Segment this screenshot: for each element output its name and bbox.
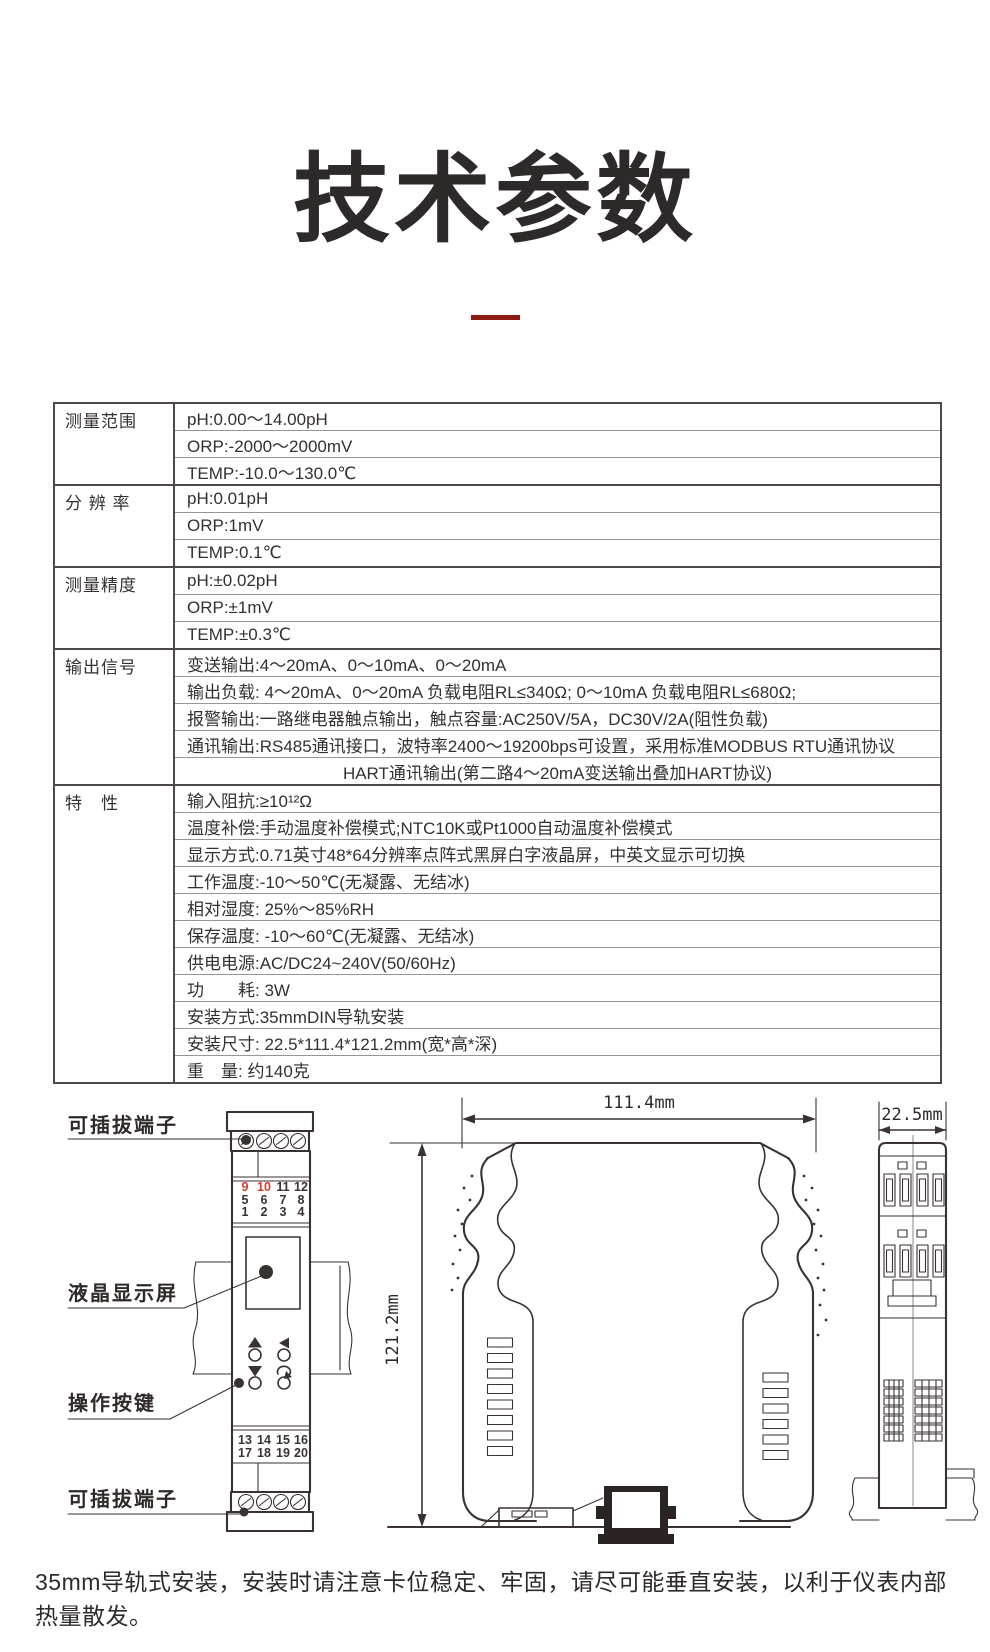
spec-row: 测量精度 pH:±0.02pH [54, 567, 941, 595]
spec-value: 报警输出:一路继电器触点输出，触点容量:AC250V/5A，DC30V/2A(阻… [174, 704, 941, 731]
spec-row: 供电电源:AC/DC24~240V(50/60Hz) [54, 948, 941, 975]
spec-row: 功 耗: 3W [54, 975, 941, 1002]
spec-value: TEMP:0.1℃ [174, 540, 941, 568]
spec-value: pH:±0.02pH [174, 567, 941, 595]
up-arrow-icon [248, 1337, 262, 1348]
spec-value: 安装方式:35mmDIN导轨安装 [174, 1002, 941, 1029]
spec-row: ORP:-2000～2000mV [54, 431, 941, 458]
svg-text:4: 4 [298, 1205, 305, 1219]
spec-group-label: 测量精度 [54, 567, 174, 649]
spec-group-label: 测量范围 [54, 403, 174, 485]
spec-value: 保存温度: -10～60℃(无凝露、无结冰) [174, 921, 941, 948]
spec-row: 特 性 输入阻抗:≥10¹²Ω [54, 785, 941, 813]
spec-group-label: 分 辨 率 [54, 485, 174, 567]
dim-width-label: 111.4mm [603, 1093, 675, 1113]
spec-row: 测量范围 pH:0.00～14.00pH [54, 403, 941, 431]
spec-row: 相对湿度: 25%～85%RH [54, 894, 941, 921]
svg-text:19: 19 [276, 1446, 290, 1460]
dim-depth-label: 22.5mm [881, 1105, 942, 1125]
button-left [278, 1349, 290, 1361]
spec-value: TEMP:±0.3℃ [174, 622, 941, 650]
svg-text:3: 3 [280, 1205, 287, 1219]
rear-view: 22.5mm [849, 1102, 977, 1520]
spec-group-label: 特 性 [54, 785, 174, 1083]
title-divider [471, 315, 520, 320]
callouts: 可插拔端子 液晶显示屏 操作按键 可插拔端子 [68, 1113, 264, 1517]
spec-row: 通讯输出:RS485通讯接口，波特率2400～19200bps可设置，采用标准M… [54, 731, 941, 758]
svg-text:10: 10 [257, 1180, 271, 1194]
svg-text:16: 16 [294, 1433, 308, 1447]
lcd-leader-dot [259, 1265, 273, 1279]
spec-value: 工作温度:-10～50℃(无凝露、无结冰) [174, 867, 941, 894]
button-up [249, 1349, 261, 1361]
spec-value: HART通讯输出(第二路4～20mA变送输出叠加HART协议) [174, 758, 941, 786]
button-down [249, 1377, 261, 1389]
spec-row: TEMP:-10.0～130.0℃ [54, 458, 941, 486]
spec-row: 温度补偿:手动温度补偿模式;NTC10K或Pt1000自动温度补偿模式 [54, 813, 941, 840]
vent-slots-right [763, 1373, 788, 1460]
spec-row: 输出信号 变送输出:4～20mA、0～10mA、0～20mA [54, 649, 941, 677]
bottom-terminal-screws [239, 1495, 306, 1510]
left-arrow-icon [279, 1338, 289, 1349]
mounting-note: 35mm导轨式安装，安装时请注意卡位稳定、牢固，请尽可能垂直安装，以利于仪表内部… [35, 1563, 965, 1631]
page: 技术参数 测量范围 pH:0.00～14.00pH ORP:-2000～2000… [0, 0, 990, 1652]
spec-group-label: 输出信号 [54, 649, 174, 785]
terminal-numbers-bottom: 13 14 15 16 17 18 19 20 [238, 1433, 308, 1460]
spec-row: ORP:1mV [54, 513, 941, 540]
spec-row: 分 辨 率 pH:0.01pH [54, 485, 941, 513]
spec-value: 功 耗: 3W [174, 975, 941, 1002]
din-clip [481, 1486, 676, 1544]
operation-buttons [248, 1337, 292, 1389]
rear-terminal-second [884, 1230, 944, 1277]
spec-value: ORP:1mV [174, 513, 941, 540]
spec-value: ORP:-2000～2000mV [174, 431, 941, 458]
spec-value: 变送输出:4～20mA、0～10mA、0～20mA [174, 649, 941, 677]
svg-text:18: 18 [257, 1446, 271, 1460]
dim-depth: 22.5mm [879, 1102, 946, 1140]
side-profile-right [740, 1143, 813, 1521]
page-title: 技术参数 [0, 142, 990, 258]
texture-dots [451, 1175, 828, 1337]
spec-value: 通讯输出:RS485通讯接口，波特率2400～19200bps可设置，采用标准M… [174, 731, 941, 758]
spec-row: 输出负载: 4～20mA、0～20mA 负载电阻RL≤340Ω; 0～10mA … [54, 677, 941, 704]
top-terminal-block [227, 1112, 313, 1131]
spec-value: 输入阻抗:≥10¹²Ω [174, 785, 941, 813]
spec-value: 输出负载: 4～20mA、0～20mA 负载电阻RL≤340Ω; 0～10mA … [174, 677, 941, 704]
rail-latch [888, 1280, 936, 1306]
spec-row: TEMP:±0.3℃ [54, 622, 941, 650]
svg-text:14: 14 [257, 1433, 271, 1447]
spec-row: TEMP:0.1℃ [54, 540, 941, 568]
label-buttons: 操作按键 [68, 1391, 156, 1415]
svg-text:1: 1 [242, 1205, 249, 1219]
terminal-numbers-top: 9 10 11 12 5 6 7 8 1 2 3 4 [242, 1180, 308, 1219]
spec-table: 测量范围 pH:0.00～14.00pH ORP:-2000～2000mV TE… [53, 402, 942, 1084]
spec-row: 工作温度:-10～50℃(无凝露、无结冰) [54, 867, 941, 894]
spec-value: 供电电源:AC/DC24~240V(50/60Hz) [174, 948, 941, 975]
side-view: 111.4mm 121.2mm [383, 1093, 827, 1544]
svg-text:12: 12 [294, 1180, 308, 1194]
down-arrow-icon [248, 1366, 262, 1377]
spec-value: 相对湿度: 25%～85%RH [174, 894, 941, 921]
spec-value: pH:0.01pH [174, 485, 941, 513]
spec-row: HART通讯输出(第二路4～20mA变送输出叠加HART协议) [54, 758, 941, 786]
installation-diagram: 9 10 11 12 5 6 7 8 1 2 3 4 [0, 1040, 990, 1552]
dim-height-label: 121.2mm [383, 1294, 403, 1366]
spec-row: ORP:±1mV [54, 595, 941, 622]
spec-value: ORP:±1mV [174, 595, 941, 622]
svg-text:15: 15 [276, 1433, 290, 1447]
svg-text:17: 17 [238, 1446, 252, 1460]
svg-text:13: 13 [238, 1433, 252, 1447]
svg-text:9: 9 [242, 1180, 249, 1194]
front-view: 9 10 11 12 5 6 7 8 1 2 3 4 [68, 1112, 352, 1531]
spec-value: 显示方式:0.71英寸48*64分辨率点阵式黑屏白字液晶屏，中英文显示可切换 [174, 840, 941, 867]
spec-row: 报警输出:一路继电器触点输出，触点容量:AC250V/5A，DC30V/2A(阻… [54, 704, 941, 731]
spec-value: TEMP:-10.0～130.0℃ [174, 458, 941, 486]
vent-slots-left [488, 1338, 513, 1456]
spec-row: 安装方式:35mmDIN导轨安装 [54, 1002, 941, 1029]
spec-row: 保存温度: -10～60℃(无凝露、无结冰) [54, 921, 941, 948]
svg-text:20: 20 [294, 1446, 308, 1460]
dim-height: 121.2mm [383, 1143, 534, 1527]
svg-text:11: 11 [276, 1180, 289, 1194]
din-rail [193, 1262, 352, 1374]
bottom-terminal-block [227, 1512, 313, 1531]
lcd-screen [246, 1237, 300, 1309]
side-profile-left [463, 1143, 536, 1521]
label-lcd: 液晶显示屏 [68, 1281, 178, 1305]
svg-text:2: 2 [261, 1205, 268, 1219]
label-bottom-terminal: 可插拔端子 [68, 1487, 178, 1511]
spec-row: 显示方式:0.71英寸48*64分辨率点阵式黑屏白字液晶屏，中英文显示可切换 [54, 840, 941, 867]
rear-terminal-top [884, 1162, 944, 1206]
button-enter [278, 1377, 290, 1389]
spec-table-wrap: 测量范围 pH:0.00～14.00pH ORP:-2000～2000mV TE… [53, 402, 942, 1084]
label-top-terminal: 可插拔端子 [68, 1113, 178, 1137]
spec-value: 温度补偿:手动温度补偿模式;NTC10K或Pt1000自动温度补偿模式 [174, 813, 941, 840]
spec-value: pH:0.00～14.00pH [174, 403, 941, 431]
